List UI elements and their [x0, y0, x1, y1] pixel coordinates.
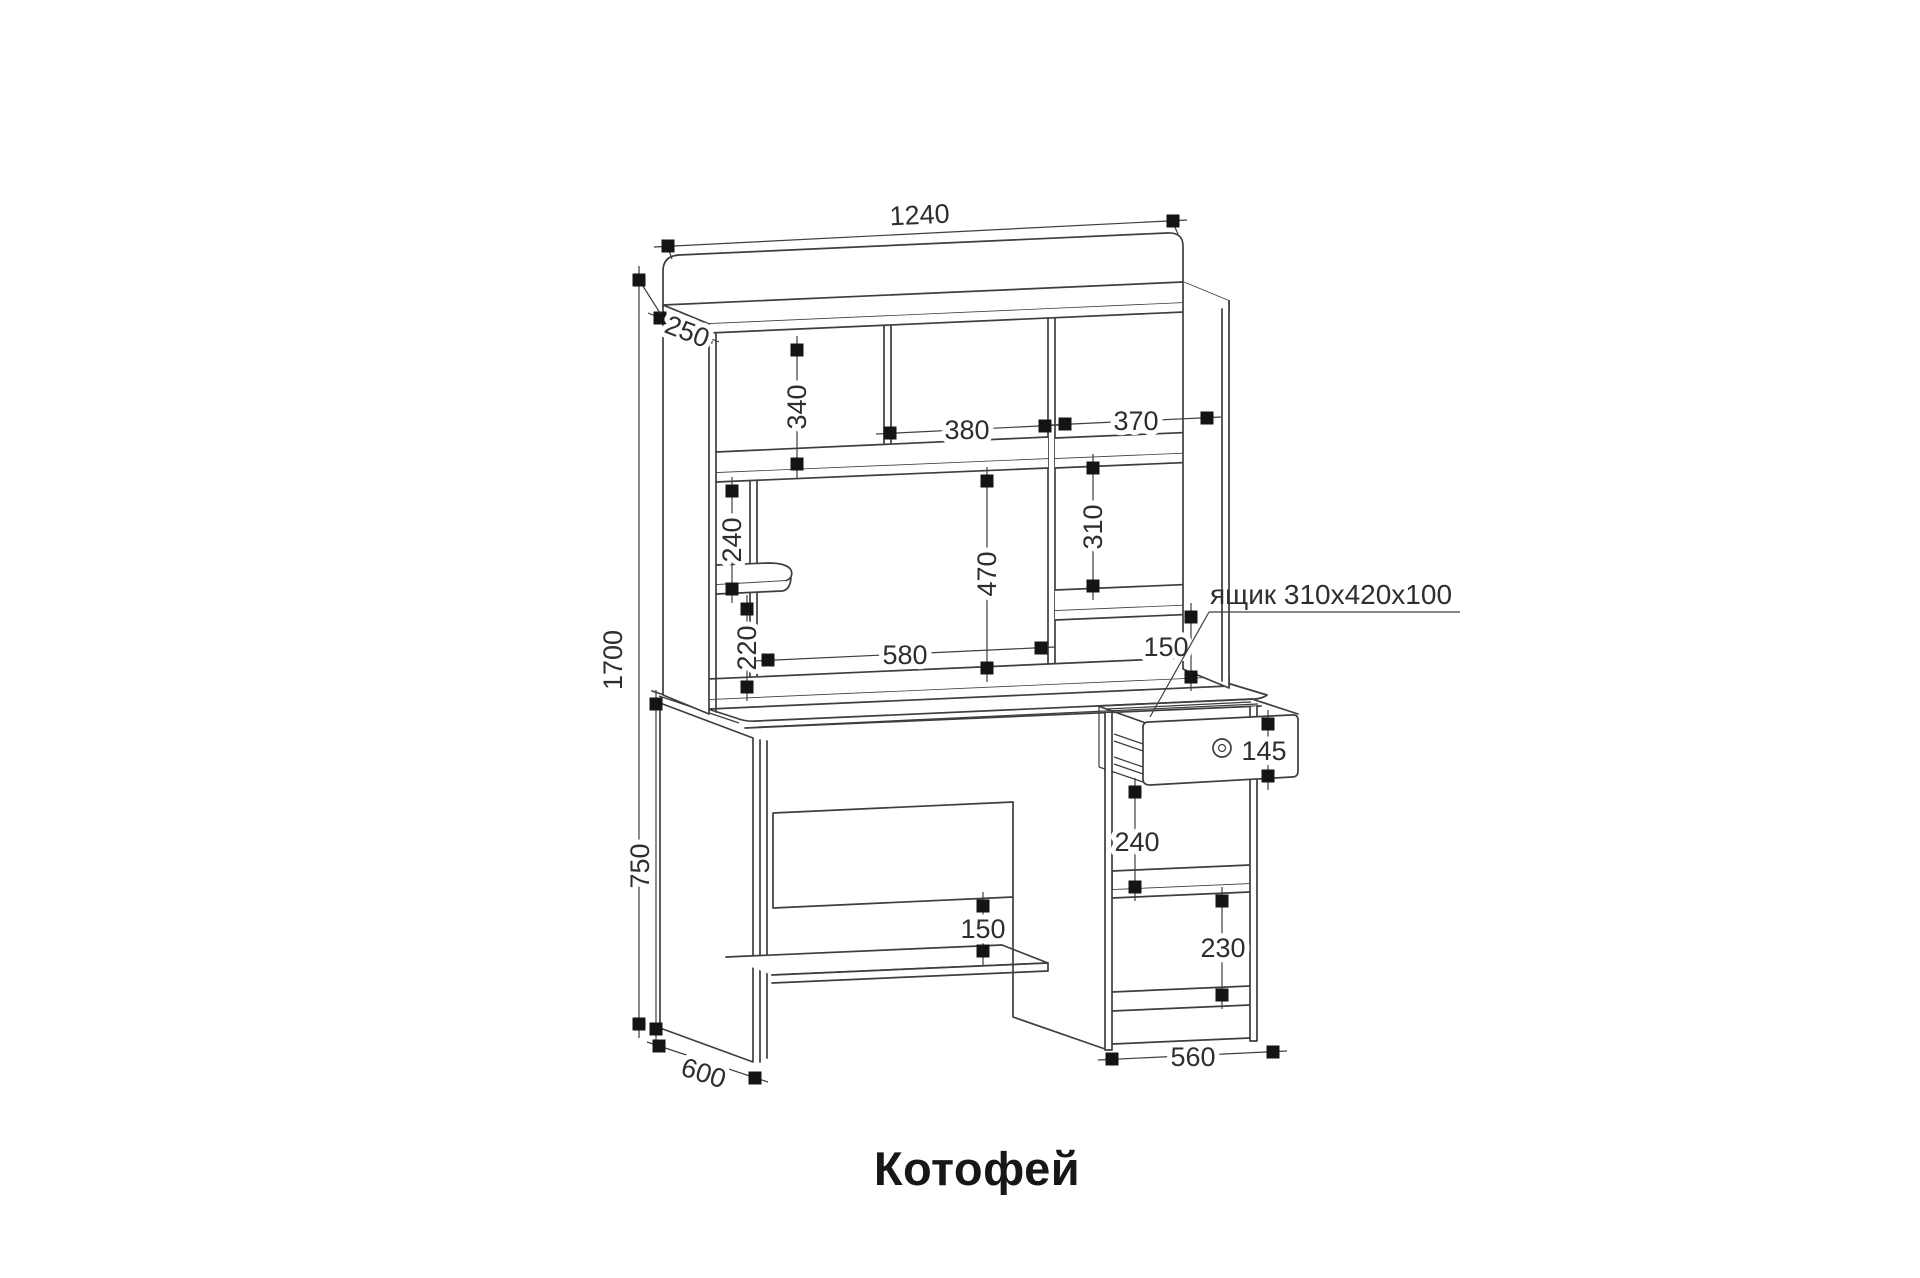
hutch-right-panel	[1183, 282, 1229, 688]
dim-total-width-label: 1240	[889, 199, 950, 232]
hutch-divider-right	[1048, 318, 1055, 684]
drawing-page: 1240 250 1700 340 380 370	[0, 0, 1920, 1278]
desk-bottom-shelf	[726, 945, 1048, 983]
dim-310-label: 310	[1078, 504, 1108, 549]
dim-desk-height-label: 750	[625, 843, 655, 888]
dim-220-label: 220	[732, 625, 762, 670]
dim-560: 560	[1098, 1042, 1287, 1072]
dim-desk-height: 750	[625, 690, 663, 1043]
dim-370-label: 370	[1113, 406, 1158, 436]
desk-back-panel	[773, 802, 1013, 908]
desk-left-panel	[660, 703, 767, 1062]
desk-blueprint: 1240 250 1700 340 380 370	[0, 0, 1920, 1278]
drawer-note-label: ящик 310x420x100	[1210, 579, 1452, 610]
page-title: Котофей	[874, 1142, 1080, 1195]
dim-340-label: 340	[782, 384, 812, 429]
dim-580-label: 580	[882, 640, 927, 670]
dim-total-height: 1700	[598, 266, 660, 1038]
hutch-left-panel	[663, 305, 716, 714]
dim-470-label: 470	[972, 551, 1002, 596]
dim-150-desk-label: 150	[960, 914, 1005, 944]
dim-380-label: 380	[944, 415, 989, 445]
cabinet-left-wall	[1105, 713, 1112, 1050]
dim-230-label: 230	[1200, 933, 1245, 963]
dim-310: 310	[1078, 454, 1108, 600]
hutch-shelf-long	[716, 437, 1048, 482]
dim-desk-depth-label: 600	[678, 1052, 730, 1094]
dim-560-label: 560	[1170, 1042, 1215, 1072]
dim-150-hutch-label: 150	[1143, 632, 1188, 662]
dim-total-height-label: 1700	[598, 630, 628, 690]
dim-145-label: 145	[1241, 736, 1286, 766]
dim-240-cabinet-label: 240	[1114, 827, 1159, 857]
dim-240-hutch-label: 240	[717, 517, 747, 562]
